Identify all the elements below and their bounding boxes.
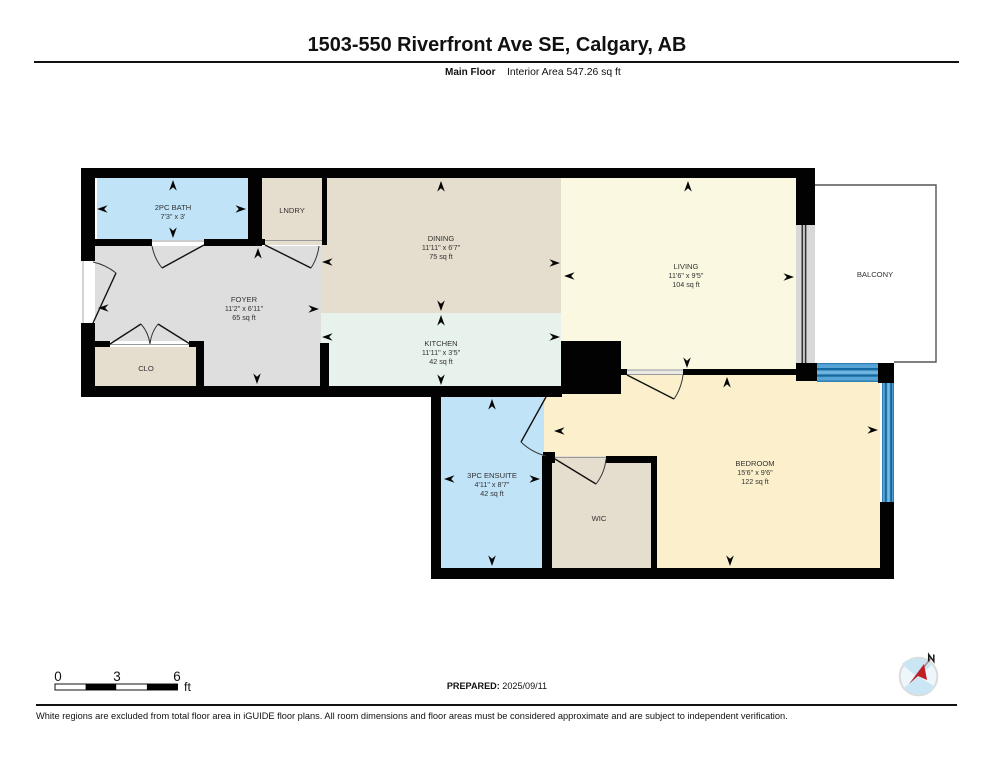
svg-text:WIC: WIC (592, 514, 607, 523)
svg-text:3: 3 (113, 669, 120, 684)
svg-text:DINING: DINING (428, 234, 455, 243)
svg-text:3PC ENSUITE: 3PC ENSUITE (467, 471, 517, 480)
svg-text:LIVING: LIVING (674, 262, 699, 271)
svg-text:75 sq ft: 75 sq ft (429, 252, 453, 261)
svg-text:6: 6 (173, 669, 180, 684)
svg-text:4'11" x 8'7": 4'11" x 8'7" (475, 480, 510, 489)
svg-text:0: 0 (54, 669, 61, 684)
svg-text:LNDRY: LNDRY (279, 206, 305, 215)
svg-text:104 sq ft: 104 sq ft (672, 280, 700, 289)
svg-text:BEDROOM: BEDROOM (735, 459, 774, 468)
svg-text:PREPARED: 2025/09/11: PREPARED: 2025/09/11 (447, 681, 547, 691)
svg-text:7'3" x 3': 7'3" x 3' (161, 212, 187, 221)
svg-text:11'6" x 9'5": 11'6" x 9'5" (669, 271, 704, 280)
svg-text:ft: ft (184, 680, 191, 694)
svg-text:42 sq ft: 42 sq ft (480, 489, 504, 498)
svg-text:42 sq ft: 42 sq ft (429, 357, 453, 366)
svg-text:2PC BATH: 2PC BATH (155, 203, 192, 212)
svg-text:11'2" x 6'11": 11'2" x 6'11" (225, 304, 264, 313)
svg-text:15'6" x 9'6": 15'6" x 9'6" (737, 468, 773, 477)
svg-text:11'11" x 3'5": 11'11" x 3'5" (422, 348, 461, 357)
svg-text:FOYER: FOYER (231, 295, 258, 304)
svg-text:CLO: CLO (138, 364, 154, 373)
svg-text:KITCHEN: KITCHEN (424, 339, 457, 348)
svg-text:65 sq ft: 65 sq ft (232, 313, 256, 322)
svg-text:BALCONY: BALCONY (857, 270, 893, 279)
svg-text:11'11" x 6'7": 11'11" x 6'7" (422, 243, 461, 252)
svg-text:122 sq ft: 122 sq ft (741, 477, 769, 486)
